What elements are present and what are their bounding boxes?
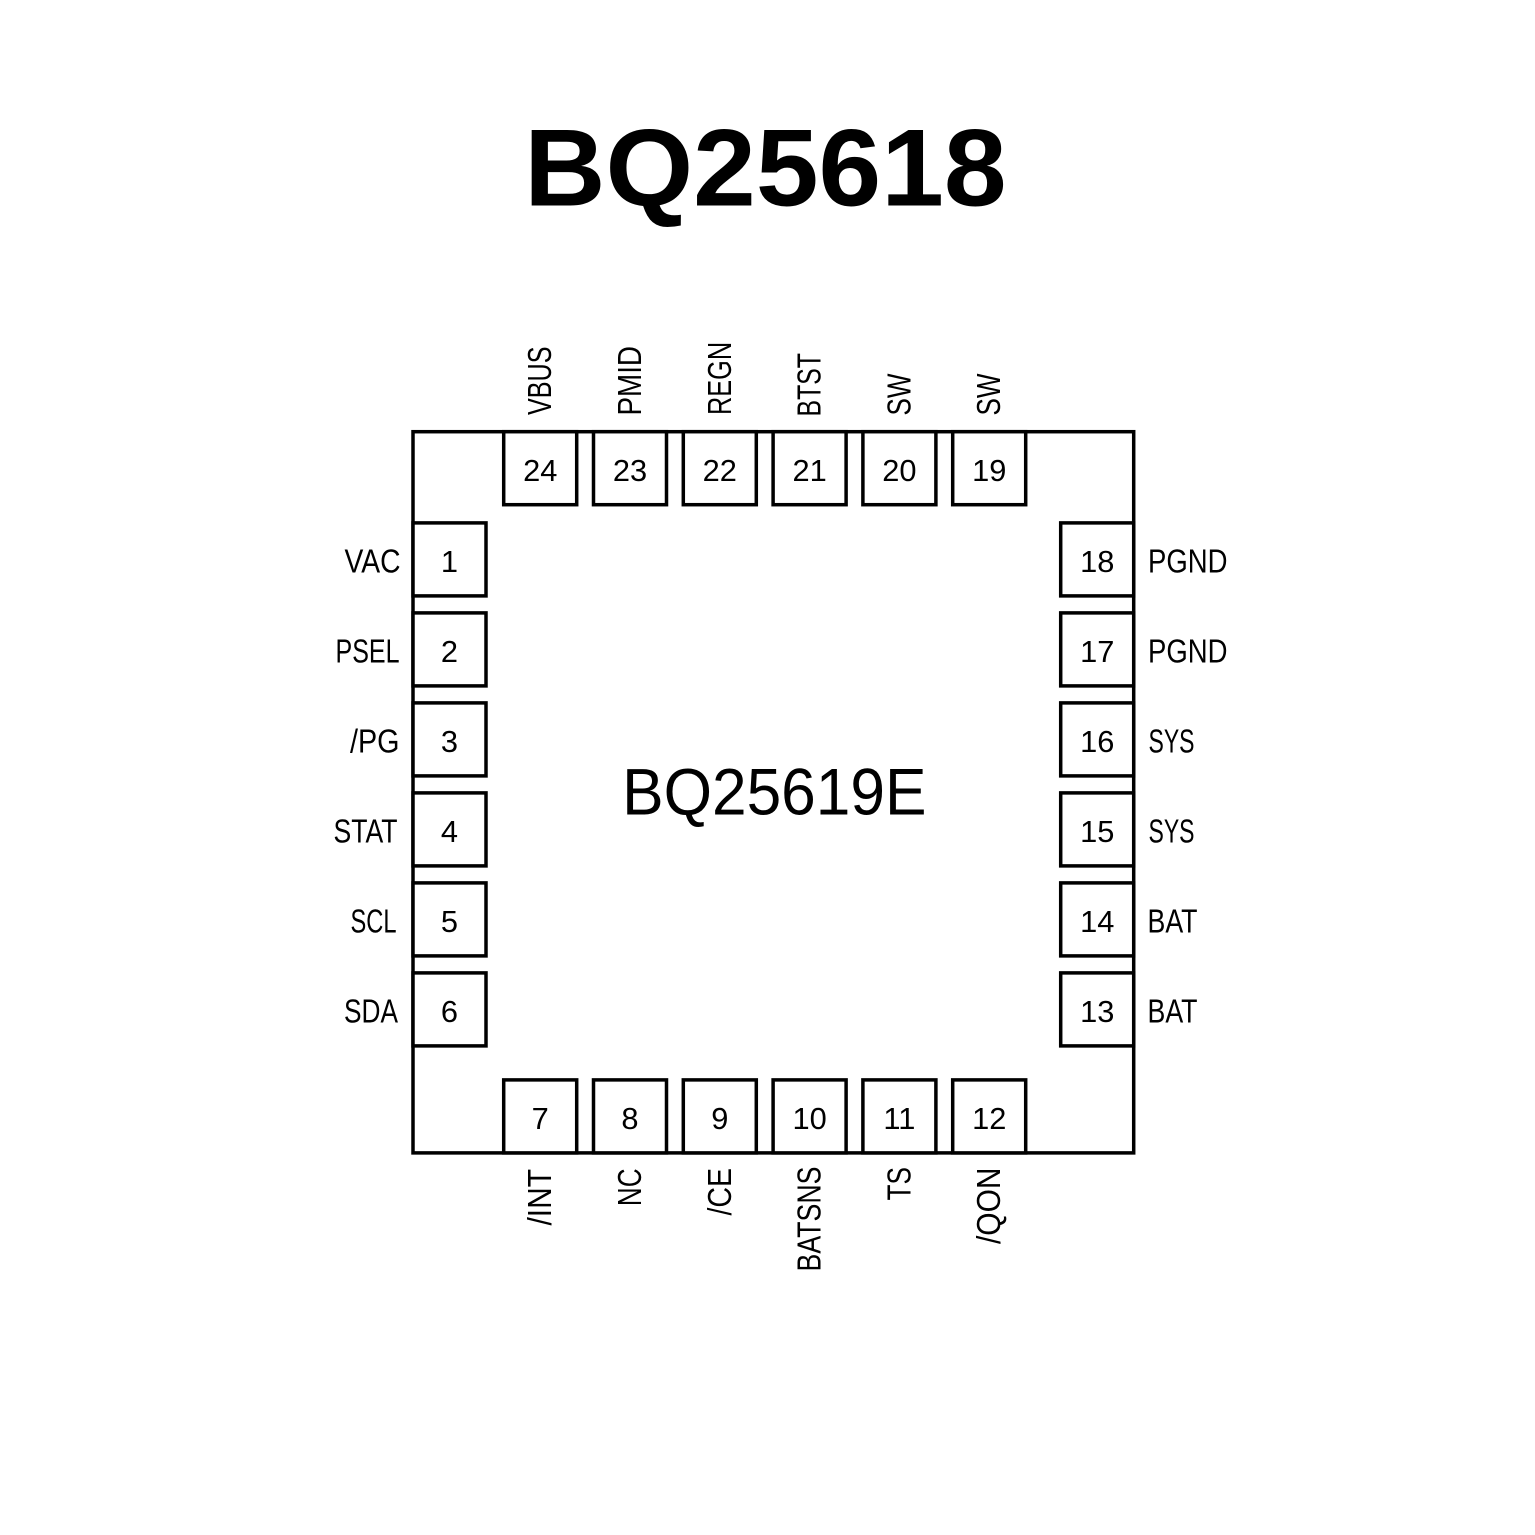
- svg-text:24: 24: [523, 453, 557, 488]
- svg-text:4: 4: [441, 814, 458, 849]
- svg-text:16: 16: [1080, 724, 1114, 759]
- svg-text:17: 17: [1080, 634, 1114, 669]
- svg-text:1: 1: [441, 544, 458, 579]
- svg-text:BQ25618: BQ25618: [524, 107, 1007, 229]
- svg-text:11: 11: [883, 1101, 915, 1136]
- svg-text:PSEL: PSEL: [336, 634, 400, 671]
- svg-text:3: 3: [441, 724, 458, 759]
- svg-text:SW: SW: [971, 373, 1008, 416]
- svg-text:SCL: SCL: [351, 904, 397, 941]
- svg-text:14: 14: [1080, 904, 1114, 939]
- svg-text:PGND: PGND: [1148, 544, 1228, 581]
- svg-text:SDA: SDA: [344, 994, 398, 1031]
- svg-text:PGND: PGND: [1148, 634, 1228, 671]
- svg-text:23: 23: [613, 453, 647, 488]
- svg-text:22: 22: [703, 453, 737, 488]
- svg-text:SYS: SYS: [1149, 724, 1195, 761]
- svg-text:/QON: /QON: [971, 1168, 1008, 1245]
- svg-text:BATSNS: BATSNS: [792, 1167, 829, 1272]
- svg-text:BTST: BTST: [792, 353, 829, 417]
- svg-text:BAT: BAT: [1148, 994, 1198, 1031]
- svg-text:/PG: /PG: [350, 724, 400, 761]
- svg-text:9: 9: [711, 1101, 728, 1136]
- svg-text:/CE: /CE: [702, 1168, 739, 1216]
- svg-text:20: 20: [882, 453, 916, 488]
- svg-text:18: 18: [1080, 544, 1114, 579]
- svg-text:PMID: PMID: [612, 346, 649, 416]
- svg-text:8: 8: [621, 1101, 638, 1136]
- svg-text:19: 19: [972, 453, 1006, 488]
- svg-text:12: 12: [972, 1101, 1006, 1136]
- svg-text:BQ25619E: BQ25619E: [622, 754, 926, 828]
- svg-text:21: 21: [792, 453, 826, 488]
- svg-text:6: 6: [441, 994, 458, 1029]
- svg-text:VAC: VAC: [345, 544, 401, 581]
- svg-text:VBUS: VBUS: [522, 347, 559, 416]
- svg-text:5: 5: [441, 904, 458, 939]
- svg-text:BAT: BAT: [1148, 904, 1198, 941]
- svg-text:NC: NC: [612, 1169, 649, 1207]
- svg-text:SYS: SYS: [1149, 814, 1195, 851]
- svg-text:2: 2: [441, 634, 458, 669]
- svg-text:STAT: STAT: [334, 814, 398, 851]
- svg-text:REGN: REGN: [702, 342, 739, 415]
- svg-text:/INT: /INT: [522, 1169, 559, 1226]
- svg-text:TS: TS: [881, 1167, 918, 1201]
- svg-text:7: 7: [532, 1101, 549, 1136]
- svg-text:15: 15: [1080, 814, 1114, 849]
- svg-text:13: 13: [1080, 994, 1114, 1029]
- svg-text:10: 10: [792, 1101, 826, 1136]
- svg-text:SW: SW: [881, 373, 918, 416]
